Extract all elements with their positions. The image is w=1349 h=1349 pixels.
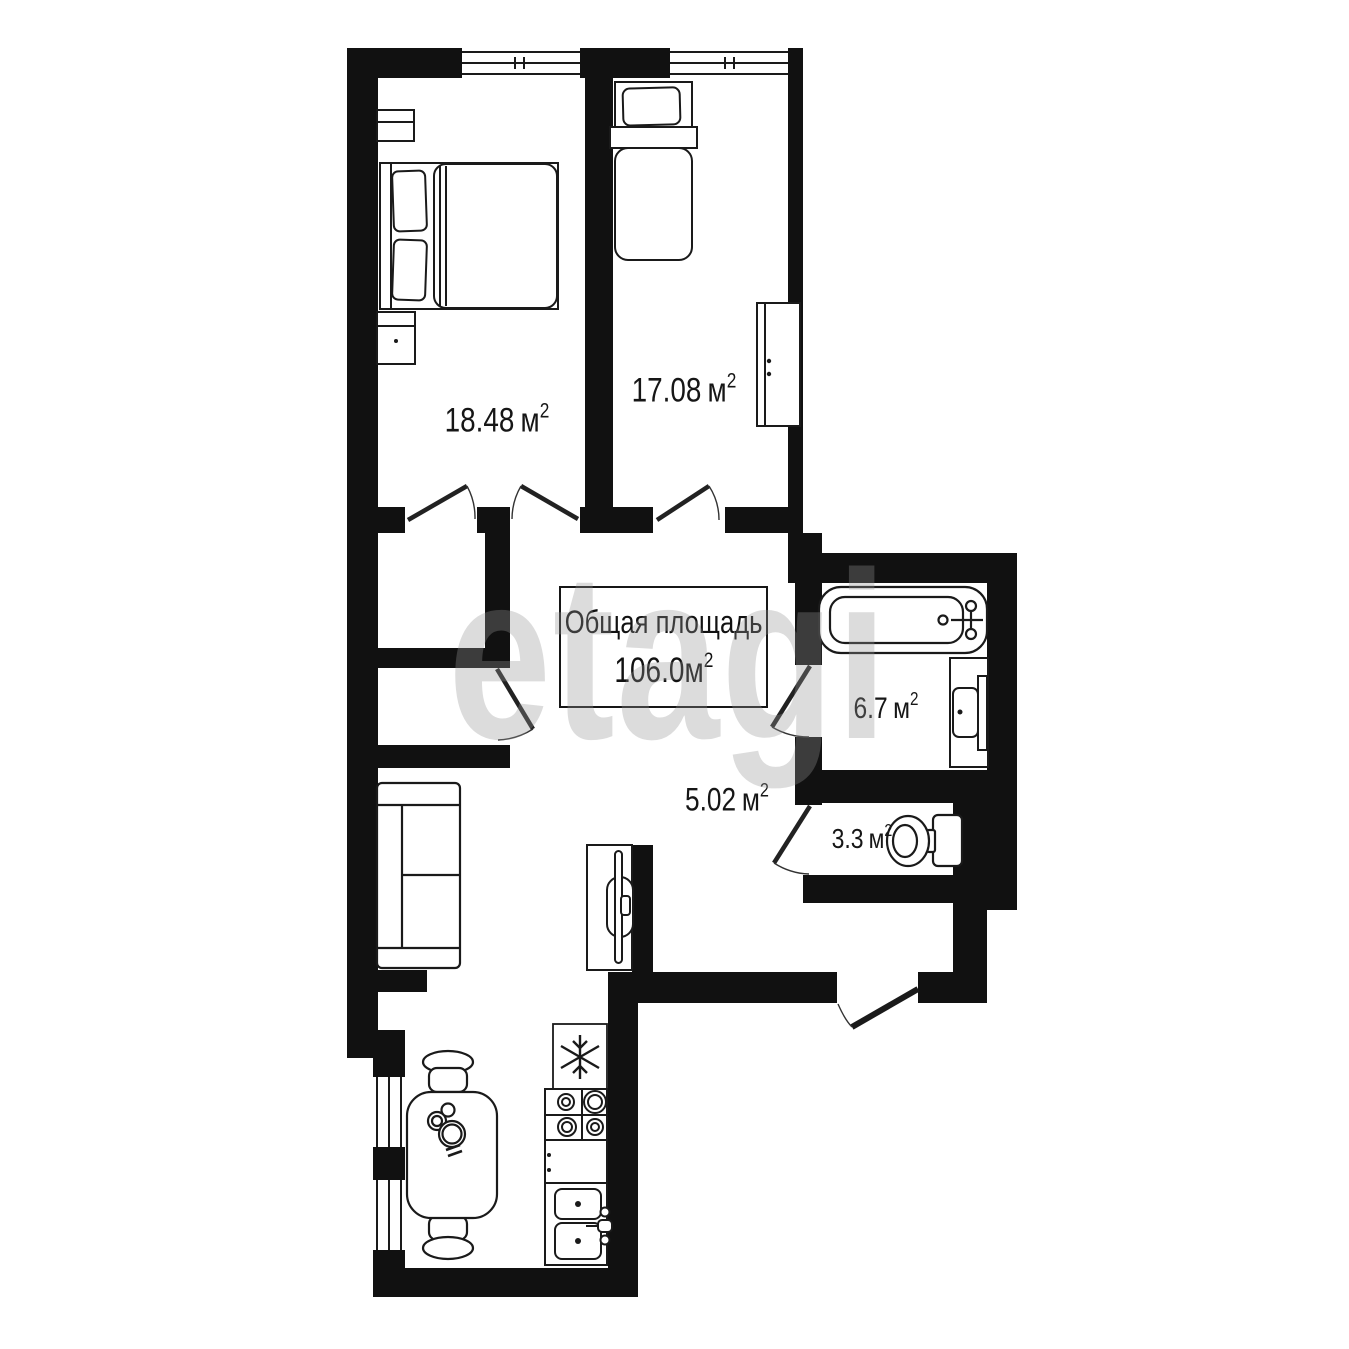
room-area-value: 17.08 [632, 372, 702, 410]
room-area-sup: 2 [727, 369, 737, 392]
room-area-unit: м [869, 823, 885, 854]
room-area-value: 6.7 [853, 692, 887, 725]
room-area-unit: м [893, 692, 910, 725]
room-area-unit: м [742, 782, 760, 818]
room-area-label-bedroom-1: 18.48м2 [445, 402, 550, 441]
room-area-sup: 2 [910, 688, 918, 709]
room-area-label-bathroom: 6.7м2 [853, 692, 918, 726]
room-area-value: 18.48 [445, 402, 515, 440]
room-area-label-bedroom-2: 17.08м2 [632, 372, 737, 411]
total-area-sup: 2 [703, 647, 713, 672]
room-area-unit: м [521, 402, 540, 440]
room-area-value: 3.3 [832, 823, 864, 854]
room-area-sup: 2 [760, 780, 769, 802]
room-area-sup: 2 [540, 399, 550, 422]
room-area-value: 5.02 [685, 782, 736, 818]
total-area-title: Общая площадь [565, 604, 763, 641]
floorplan-page: Общая площадь 106.0м2 18.48м2 17.08м2 6.… [0, 0, 1349, 1349]
total-area-value: 106.0м2 [614, 651, 713, 691]
total-area-box: Общая площадь 106.0м2 [560, 587, 767, 707]
total-area-unit: м [684, 651, 703, 690]
room-area-unit: м [708, 372, 727, 410]
room-area-label-hallway: 5.02м2 [685, 782, 769, 819]
total-area-number: 106.0 [614, 651, 684, 690]
room-area-sup: 2 [884, 820, 892, 840]
room-area-label-wc: 3.3м2 [832, 823, 893, 855]
labels-layer: Общая площадь 106.0м2 18.48м2 17.08м2 6.… [0, 0, 1349, 1349]
